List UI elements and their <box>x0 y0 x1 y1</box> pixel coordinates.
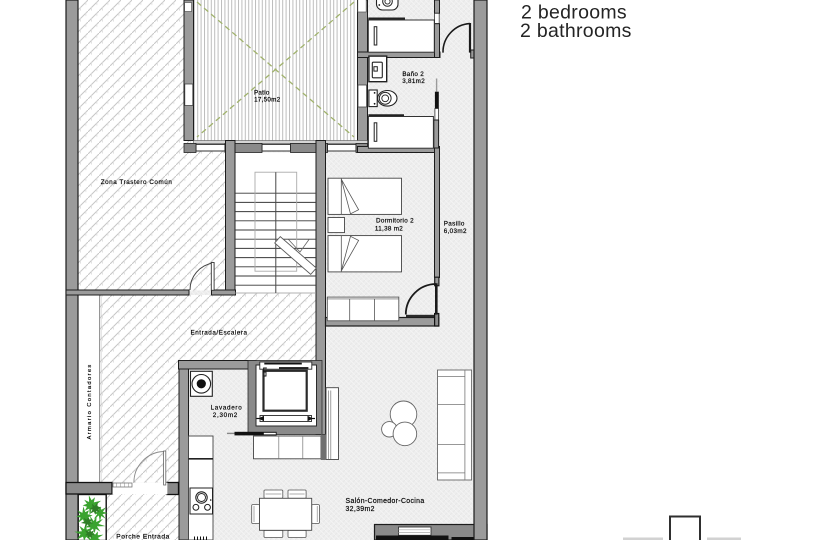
svg-text:6,03m2: 6,03m2 <box>444 228 467 235</box>
svg-text:3,81m2: 3,81m2 <box>402 78 425 85</box>
svg-text:Pasillo: Pasillo <box>444 220 465 227</box>
svg-text:Entrada/Escalera: Entrada/Escalera <box>191 329 248 336</box>
svg-text:11,38 m2: 11,38 m2 <box>375 225 403 232</box>
svg-text:Salón-Comedor-Cocina: Salón-Comedor-Cocina <box>346 498 425 505</box>
svg-text:17,50m2: 17,50m2 <box>254 96 281 103</box>
svg-text:Dormitorio 2: Dormitorio 2 <box>376 217 414 224</box>
svg-text:2,30m2: 2,30m2 <box>213 412 238 419</box>
svg-text:Zona Trastero Común: Zona Trastero Común <box>101 179 173 186</box>
svg-text:Baño 2: Baño 2 <box>402 71 424 78</box>
svg-text:Lavadero: Lavadero <box>211 405 243 412</box>
svg-text:2 bathrooms: 2 bathrooms <box>520 20 632 42</box>
svg-text:32,39m2: 32,39m2 <box>346 506 375 513</box>
svg-text:Porche Entrada: Porche Entrada <box>116 534 170 540</box>
svg-text:Armario Contadores: Armario Contadores <box>87 363 93 439</box>
